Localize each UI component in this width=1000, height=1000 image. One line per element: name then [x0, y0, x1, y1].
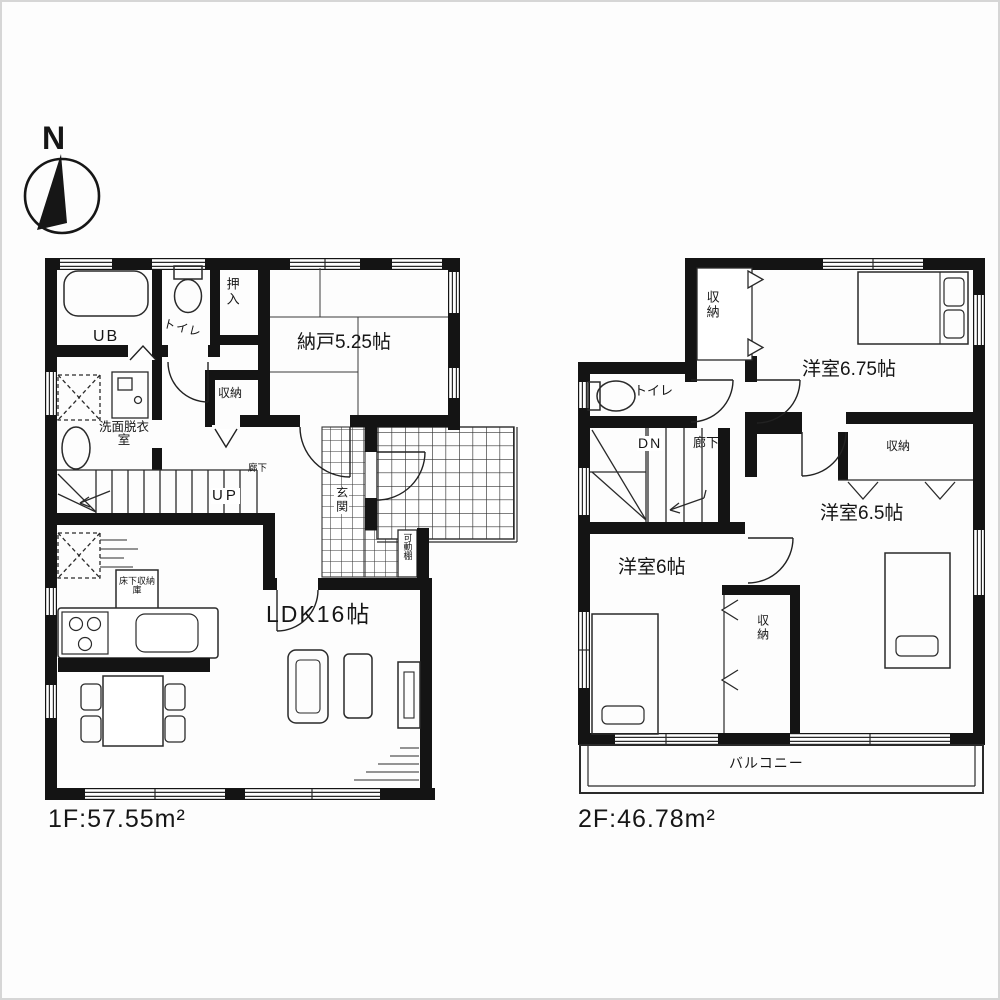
floor2-closets	[697, 268, 973, 733]
floorplan-page: N UB トイレ 押入 納戸5.25帖 収納 洗面脱衣室 廊下 UP 玄関 可動…	[0, 0, 1000, 1000]
sofa-icon	[288, 650, 328, 723]
floor1-area-label: 1F:57.55m²	[48, 806, 186, 832]
room-label-yoshitsu-675: 洋室6.75帖	[802, 360, 896, 380]
single-bed-icon-65	[885, 553, 950, 668]
floor2-doors	[691, 380, 846, 583]
room-label-oshiire: 押入	[225, 277, 239, 307]
shelf-lines	[100, 540, 138, 567]
floor2-area-label: 2F:46.78m²	[578, 806, 716, 832]
room-label-yoshitsu-6: 洋室6帖	[618, 558, 686, 578]
compass-icon	[25, 154, 99, 233]
washing-machine-icon	[58, 375, 100, 420]
room-label-shuno-2f-e: 収納	[886, 440, 910, 453]
room-label-toilet-2f: トイレ	[634, 384, 673, 398]
room-label-yoshitsu-65: 洋室6.5帖	[820, 504, 903, 524]
refrigerator-space-icon	[58, 533, 100, 578]
room-label-shuno-1f: 収納	[218, 387, 242, 400]
floor2-walls	[578, 258, 985, 745]
compass-north-label: N	[42, 122, 65, 156]
floor2-windows	[579, 259, 984, 744]
stairs-dn-label: DN	[637, 436, 663, 451]
stairs-up-label: UP	[211, 488, 240, 504]
single-bed-icon-6	[592, 614, 658, 734]
step-hatch	[354, 748, 419, 780]
double-bed-icon	[858, 272, 968, 344]
room-label-shuno-2f-nw: 収納	[705, 290, 719, 320]
room-label-yukashita: 床下収納庫	[119, 577, 155, 596]
floorplan-linework	[0, 0, 1000, 1000]
room-label-kado-dana: 可動棚	[402, 533, 411, 560]
room-label-ub: UB	[93, 329, 119, 346]
room-label-nando: 納戸5.25帖	[297, 333, 391, 353]
vanity-icon	[112, 372, 148, 418]
room-label-ldk: LDK16帖	[266, 602, 371, 626]
room-label-rouka-2f: 廊下	[693, 436, 719, 450]
kitchen-counter-icon	[58, 608, 218, 672]
room-label-shuno-2f-s: 収納	[756, 614, 769, 642]
low-table-icon	[344, 654, 372, 718]
balcony-label: バルコニー	[729, 756, 804, 771]
bathtub-icon	[64, 271, 148, 316]
toilet-icon-2f	[588, 381, 635, 411]
toilet-icon-1f	[174, 266, 202, 313]
room-label-rouka-1f: 廊下	[248, 464, 267, 474]
room-label-genkan: 玄関	[334, 486, 349, 514]
tv-board-icon	[398, 662, 420, 728]
dining-table-icon	[81, 676, 185, 746]
basin-icon	[62, 427, 90, 469]
room-label-senmen: 洗面脱衣室	[96, 421, 152, 447]
